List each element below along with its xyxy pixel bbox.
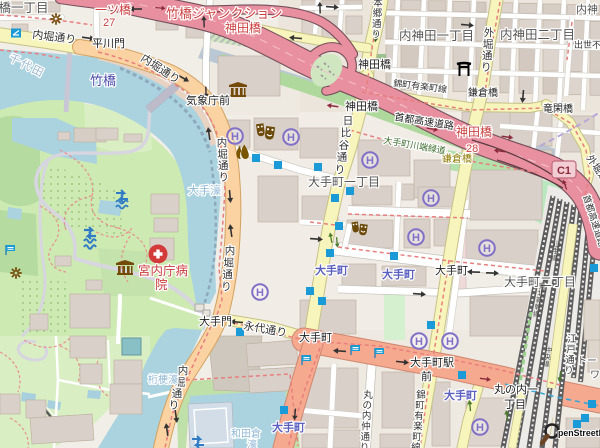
svg-text:ワ: ワ	[590, 370, 600, 381]
svg-text:中: 中	[546, 345, 553, 354]
svg-text:仲: 仲	[361, 421, 371, 433]
svg-text:27: 27	[103, 17, 115, 29]
svg-text:り: り	[335, 164, 346, 176]
svg-text:H: H	[231, 131, 239, 143]
svg-text:丁目: 丁目	[504, 399, 526, 411]
svg-text:り: り	[169, 400, 180, 412]
svg-text:神田橋: 神田橋	[345, 99, 378, 113]
svg-text:比: 比	[341, 126, 352, 139]
svg-text:penStreetMap: penStreetMap	[558, 428, 600, 438]
svg-text:ツ橋一丁目: ツ橋一丁目	[0, 1, 49, 15]
svg-text:丸: 丸	[363, 389, 373, 401]
svg-text:H: H	[446, 336, 454, 348]
svg-text:内: 内	[178, 364, 189, 377]
svg-text:和田倉: 和田倉	[231, 427, 261, 440]
svg-text:り: り	[221, 281, 232, 293]
svg-text:通: 通	[360, 432, 370, 443]
svg-text:堀: 堀	[217, 149, 228, 161]
svg-text:堀: 堀	[483, 39, 494, 51]
svg-text:大手町: 大手町	[299, 330, 332, 344]
svg-text:谷: 谷	[339, 139, 350, 151]
svg-text:通: 通	[565, 355, 575, 366]
svg-text:通: 通	[372, 19, 382, 30]
svg-text:内: 内	[362, 410, 372, 422]
svg-text:り: り	[481, 62, 492, 74]
svg-text:内神: 内神	[576, 2, 598, 16]
svg-text:大手町: 大手町	[272, 420, 305, 434]
svg-text:内神田一丁目: 内神田一丁目	[399, 29, 474, 43]
svg-text:竜閑橋: 竜閑橋	[543, 102, 573, 115]
svg-text:大手町: 大手町	[382, 267, 415, 281]
svg-text:神田橋: 神田橋	[456, 125, 492, 139]
svg-text:町: 町	[412, 432, 422, 443]
svg-text:有: 有	[414, 410, 424, 422]
svg-text:り: り	[219, 172, 230, 184]
svg-text:手: 手	[552, 246, 559, 255]
svg-text:大手町一丁目: 大手町一丁目	[308, 175, 380, 189]
svg-text:郷: 郷	[373, 9, 383, 20]
svg-text:C1: C1	[557, 165, 571, 177]
svg-text:H: H	[415, 336, 423, 348]
svg-text:通: 通	[172, 388, 183, 400]
svg-text:線: 線	[533, 309, 540, 318]
svg-text:宮内庁病: 宮内庁病	[138, 263, 188, 278]
svg-text:内: 内	[225, 244, 236, 257]
svg-text:通: 通	[218, 160, 229, 172]
svg-text:鎌倉橋: 鎌倉橋	[442, 152, 472, 165]
svg-text:錦: 錦	[416, 389, 426, 401]
svg-text:鎌倉橋: 鎌倉橋	[468, 86, 498, 99]
svg-text:大手濠: 大手濠	[188, 183, 221, 197]
svg-text:央: 央	[544, 352, 551, 361]
svg-text:東: 東	[539, 281, 546, 290]
svg-text:大手門: 大手門	[199, 314, 232, 328]
svg-text:戸: 戸	[566, 345, 576, 356]
svg-text:気象庁前: 気象庁前	[186, 93, 230, 107]
svg-text:北: 北	[537, 289, 544, 297]
svg-text:H: H	[366, 155, 374, 167]
svg-text:前: 前	[421, 369, 432, 383]
svg-text:線: 線	[411, 442, 421, 448]
svg-text:楽: 楽	[413, 421, 423, 433]
svg-text:線: 線	[551, 253, 558, 262]
svg-text:大手町: 大手町	[435, 263, 468, 277]
svg-text:町: 町	[415, 401, 425, 412]
svg-text:り: り	[360, 443, 370, 448]
svg-text:大手町: 大手町	[315, 263, 348, 277]
svg-text:院: 院	[155, 278, 168, 292]
svg-text:濠: 濠	[247, 438, 257, 448]
svg-text:り: り	[564, 366, 574, 377]
svg-text:H: H	[483, 243, 491, 255]
svg-text:トー: トー	[577, 356, 597, 367]
svg-text:H: H	[287, 132, 295, 144]
svg-text:幹: 幹	[535, 302, 542, 311]
svg-text:内: 内	[217, 136, 228, 149]
svg-text:外: 外	[484, 27, 495, 39]
svg-text:大手町: 大手町	[444, 388, 477, 402]
svg-text:線: 線	[543, 359, 550, 368]
svg-text:H: H	[427, 193, 435, 205]
svg-text:新: 新	[536, 295, 543, 304]
svg-text:大手町駅: 大手町駅	[410, 355, 454, 369]
svg-text:出世不: 出世不	[574, 39, 600, 50]
svg-text:一ツ橋: 一ツ橋	[95, 3, 131, 17]
svg-text:通: 通	[337, 152, 348, 164]
svg-text:堀: 堀	[224, 257, 235, 269]
svg-text:日: 日	[343, 115, 354, 127]
svg-text:内神田二丁目: 内神田二丁目	[500, 28, 575, 42]
svg-text:江: 江	[567, 334, 577, 345]
svg-text:桁梗濠: 桁梗濠	[148, 373, 178, 386]
svg-text:り: り	[371, 30, 381, 41]
svg-text:竹橋ジャンクション: 竹橋ジャンクション	[166, 6, 282, 21]
svg-text:H: H	[476, 422, 484, 434]
svg-text:の: の	[363, 401, 373, 412]
svg-text:神田橋: 神田橋	[225, 21, 261, 35]
svg-text:丸の内一: 丸の内一	[494, 382, 538, 396]
svg-text:山: 山	[554, 239, 561, 248]
svg-text:竹橋: 竹橋	[90, 73, 116, 88]
svg-text:通: 通	[222, 269, 233, 281]
svg-text:H: H	[256, 287, 264, 299]
svg-text:神田橋: 神田橋	[358, 57, 391, 71]
svg-text:通: 通	[482, 50, 493, 62]
svg-text:平川門: 平川門	[92, 37, 125, 50]
svg-text:H: H	[412, 232, 420, 244]
